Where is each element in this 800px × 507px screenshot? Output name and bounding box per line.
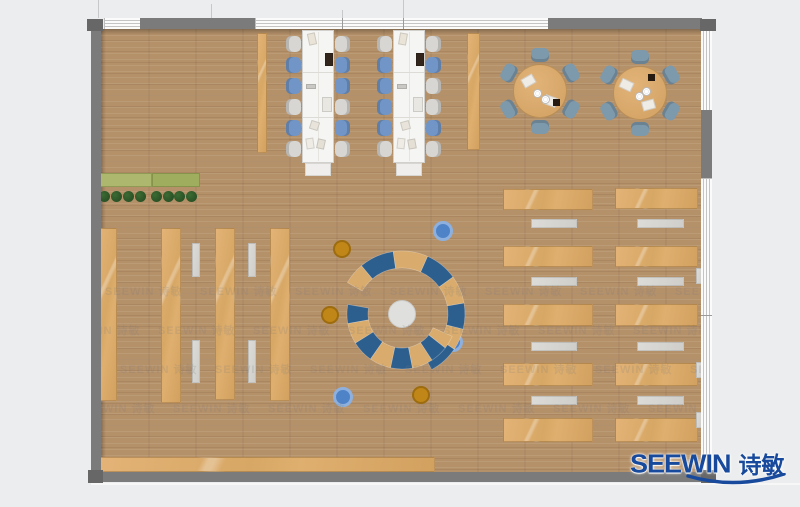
planter-box bbox=[152, 173, 200, 187]
chair bbox=[531, 120, 549, 134]
wall-left bbox=[91, 30, 101, 473]
plant-icon bbox=[163, 191, 174, 202]
reading-bench bbox=[637, 277, 684, 286]
desk-row bbox=[615, 418, 698, 442]
reading-bench bbox=[637, 396, 684, 405]
chair bbox=[377, 78, 392, 94]
center-hub-table bbox=[388, 300, 416, 328]
ottoman-stool bbox=[333, 387, 353, 407]
window-mullion bbox=[701, 315, 712, 316]
chair bbox=[377, 36, 392, 52]
reading-bench bbox=[531, 219, 577, 228]
side-bench bbox=[257, 33, 267, 153]
table-end-cabinet bbox=[305, 163, 331, 176]
chair bbox=[335, 120, 350, 136]
chair bbox=[377, 141, 392, 157]
ottoman-stool bbox=[333, 240, 351, 258]
chair bbox=[335, 99, 350, 115]
table-item bbox=[325, 53, 333, 66]
chair bbox=[286, 141, 301, 157]
table-item bbox=[305, 137, 314, 149]
chair bbox=[335, 36, 350, 52]
bookshelf bbox=[161, 228, 181, 403]
plant-icon bbox=[135, 191, 146, 202]
window-top-gap bbox=[104, 18, 142, 29]
table-item bbox=[648, 74, 655, 81]
logo-swoosh-icon bbox=[686, 473, 786, 488]
plate-icon bbox=[642, 87, 651, 96]
chair bbox=[377, 99, 392, 115]
chair bbox=[286, 36, 301, 52]
chair bbox=[631, 122, 649, 136]
plant-icon bbox=[123, 191, 134, 202]
desk-row bbox=[615, 246, 698, 267]
wall-bottom bbox=[91, 472, 716, 482]
reading-bench bbox=[248, 340, 256, 383]
table-seam bbox=[394, 117, 424, 118]
window-right-lower bbox=[701, 178, 712, 474]
table-item bbox=[553, 99, 560, 106]
chair bbox=[426, 120, 441, 136]
chair bbox=[426, 141, 441, 157]
chair bbox=[335, 78, 350, 94]
table-item bbox=[306, 84, 316, 89]
reading-bench bbox=[531, 342, 577, 351]
chair bbox=[335, 57, 350, 73]
bookshelf bbox=[270, 228, 290, 401]
plant-icon bbox=[174, 191, 185, 202]
table-item bbox=[322, 97, 332, 112]
ottoman-stool bbox=[443, 332, 463, 352]
chair bbox=[531, 48, 549, 62]
wall-corner-bottom-left bbox=[88, 470, 103, 483]
chair bbox=[377, 57, 392, 73]
table-item bbox=[396, 138, 405, 150]
table-item bbox=[413, 97, 423, 112]
desk-row bbox=[503, 189, 593, 210]
plate-icon bbox=[541, 95, 550, 104]
chair bbox=[286, 99, 301, 115]
ottoman-stool bbox=[412, 386, 430, 404]
furniture-layer bbox=[0, 0, 800, 507]
seewin-logo: SEEWIN 诗敏 bbox=[630, 451, 800, 485]
chair bbox=[286, 120, 301, 136]
wall-top-segment bbox=[548, 18, 702, 29]
chair bbox=[335, 141, 350, 157]
table-item bbox=[397, 84, 407, 89]
reading-bench bbox=[637, 219, 684, 228]
wall-corner-top-left bbox=[87, 19, 103, 31]
window-mullion bbox=[403, 18, 404, 29]
floor-plan-canvas: SEEWIN 诗敏SEEWIN 诗敏SEEWIN 诗敏SEEWIN 诗敏SEEW… bbox=[0, 0, 800, 507]
chair bbox=[286, 57, 301, 73]
reading-bench bbox=[192, 243, 200, 277]
desk-row bbox=[503, 418, 593, 442]
ottoman-stool bbox=[321, 306, 339, 324]
desk-row bbox=[615, 188, 698, 209]
bookshelf bbox=[215, 228, 235, 400]
desk-row bbox=[503, 363, 593, 386]
reading-bench bbox=[248, 243, 256, 277]
chair bbox=[426, 57, 441, 73]
chair bbox=[426, 36, 441, 52]
table-item bbox=[416, 53, 424, 66]
chair bbox=[631, 50, 649, 64]
table-item bbox=[407, 138, 417, 149]
wall-right-segment bbox=[701, 110, 712, 178]
wall-corner-top-right bbox=[700, 19, 716, 31]
reading-bench bbox=[531, 396, 577, 405]
side-bench bbox=[467, 33, 480, 150]
ottoman-stool bbox=[433, 221, 453, 241]
planter-box bbox=[98, 173, 152, 187]
chair bbox=[286, 78, 301, 94]
chair bbox=[426, 99, 441, 115]
table-end-cabinet bbox=[396, 163, 422, 176]
bottom-bench bbox=[100, 457, 435, 472]
wall-top-segment bbox=[140, 18, 255, 29]
window-mullion bbox=[342, 18, 343, 29]
reading-bench bbox=[192, 340, 200, 383]
table-seam bbox=[303, 117, 333, 118]
desk-row bbox=[615, 363, 698, 386]
chair bbox=[377, 120, 392, 136]
plant-icon bbox=[186, 191, 197, 202]
reading-bench bbox=[637, 342, 684, 351]
desk-row bbox=[503, 304, 593, 326]
desk-row bbox=[615, 304, 698, 326]
plant-icon bbox=[111, 191, 122, 202]
chair bbox=[426, 78, 441, 94]
table-seam bbox=[394, 72, 424, 73]
desk-row bbox=[503, 246, 593, 267]
plant-icon bbox=[151, 191, 162, 202]
reading-bench bbox=[531, 277, 577, 286]
window-right-upper bbox=[701, 30, 712, 112]
table-seam bbox=[303, 72, 333, 73]
